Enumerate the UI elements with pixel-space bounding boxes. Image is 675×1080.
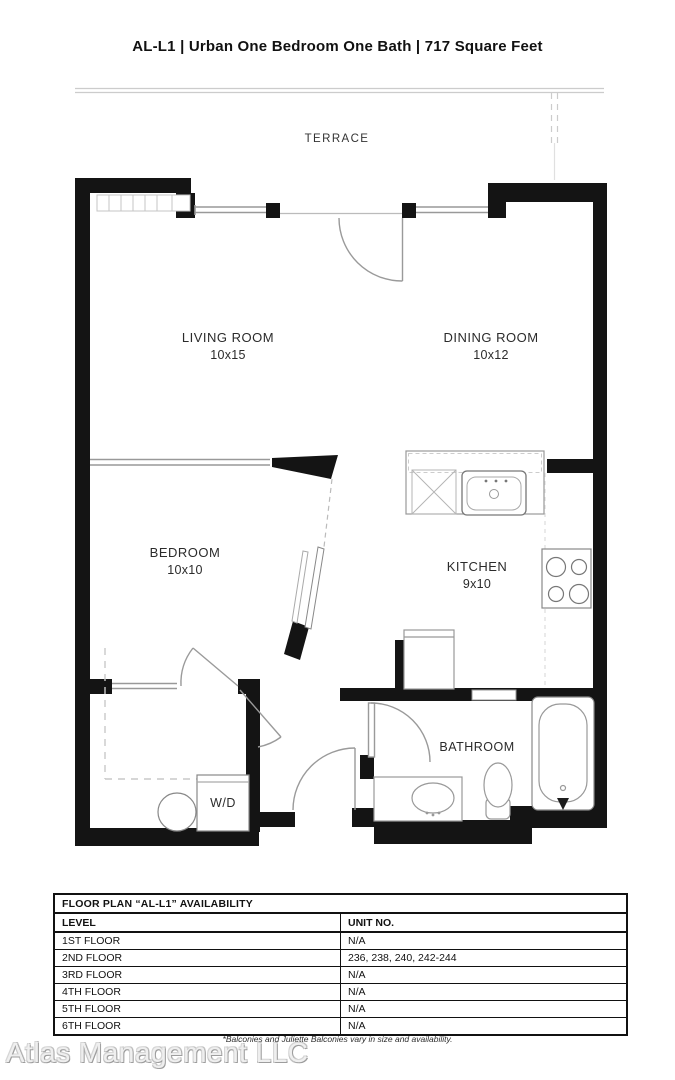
room-dims: 9x10 <box>447 576 508 594</box>
level-cell: 2ND FLOOR <box>54 950 341 967</box>
disclaimer-text: *Balconies and Juliette Balconies vary i… <box>0 1034 675 1044</box>
level-cell: 1ST FLOOR <box>54 932 341 950</box>
room-name: W/D <box>210 795 236 813</box>
floor-plan-page: AL-L1 | Urban One Bedroom One Bath | 717… <box>0 0 675 1080</box>
table-row: 1ST FLOOR N/A <box>54 932 627 950</box>
level-cell: 5TH FLOOR <box>54 1001 341 1018</box>
table-row: 4TH FLOOR N/A <box>54 984 627 1001</box>
room-dims: 10x15 <box>182 347 274 365</box>
level-cell: 4TH FLOOR <box>54 984 341 1001</box>
units-cell: N/A <box>341 1018 628 1036</box>
closet-dashed-outline <box>105 648 205 779</box>
toilet <box>484 763 512 819</box>
room-label-kitchen: KITCHEN 9x10 <box>447 558 508 594</box>
room-label-bedroom: BEDROOM 10x10 <box>150 544 221 580</box>
water-heater <box>158 793 196 831</box>
col-header-unit: UNIT NO. <box>341 913 628 932</box>
room-name: BATHROOM <box>439 739 514 757</box>
baseboard-heater <box>97 195 190 211</box>
table-row: 6TH FLOOR N/A <box>54 1018 627 1036</box>
units-cell: 236, 238, 240, 242-244 <box>341 950 628 967</box>
room-label-bathroom: BATHROOM <box>439 739 514 757</box>
availability-title: FLOOR PLAN “AL-L1” AVAILABILITY <box>54 894 627 913</box>
room-dims: 10x12 <box>443 347 538 365</box>
terrace-label: TERRACE <box>305 133 370 145</box>
units-cell: N/A <box>341 984 628 1001</box>
level-cell: 6TH FLOOR <box>54 1018 341 1036</box>
room-dims: 10x10 <box>150 562 221 580</box>
units-cell: N/A <box>341 1001 628 1018</box>
room-label-dining-room: DINING ROOM 10x12 <box>443 329 538 365</box>
level-cell: 3RD FLOOR <box>54 967 341 984</box>
room-name: KITCHEN <box>447 558 508 576</box>
windows <box>90 205 488 689</box>
wall-niche <box>472 690 516 700</box>
room-label-laundry: W/D <box>210 795 236 813</box>
units-cell: N/A <box>341 967 628 984</box>
refrigerator <box>404 630 454 689</box>
availability-title-row: FLOOR PLAN “AL-L1” AVAILABILITY <box>54 894 627 913</box>
room-name: DINING ROOM <box>443 329 538 347</box>
room-name: BEDROOM <box>150 544 221 562</box>
room-name: LIVING ROOM <box>182 329 274 347</box>
col-header-level: LEVEL <box>54 913 341 932</box>
units-cell: N/A <box>341 932 628 950</box>
bathtub <box>532 697 594 810</box>
door-swings <box>181 218 430 810</box>
bedroom-sliding-door <box>292 479 332 629</box>
availability-table: FLOOR PLAN “AL-L1” AVAILABILITY LEVEL UN… <box>53 893 628 1036</box>
stove <box>542 549 591 608</box>
vanity-sink <box>374 777 462 821</box>
table-row: 2ND FLOOR 236, 238, 240, 242-244 <box>54 950 627 967</box>
table-row: 3RD FLOOR N/A <box>54 967 627 984</box>
kitchen-sink <box>462 471 526 515</box>
table-row: 5TH FLOOR N/A <box>54 1001 627 1018</box>
room-label-living-room: LIVING ROOM 10x15 <box>182 329 274 365</box>
availability-header-row: LEVEL UNIT NO. <box>54 913 627 932</box>
